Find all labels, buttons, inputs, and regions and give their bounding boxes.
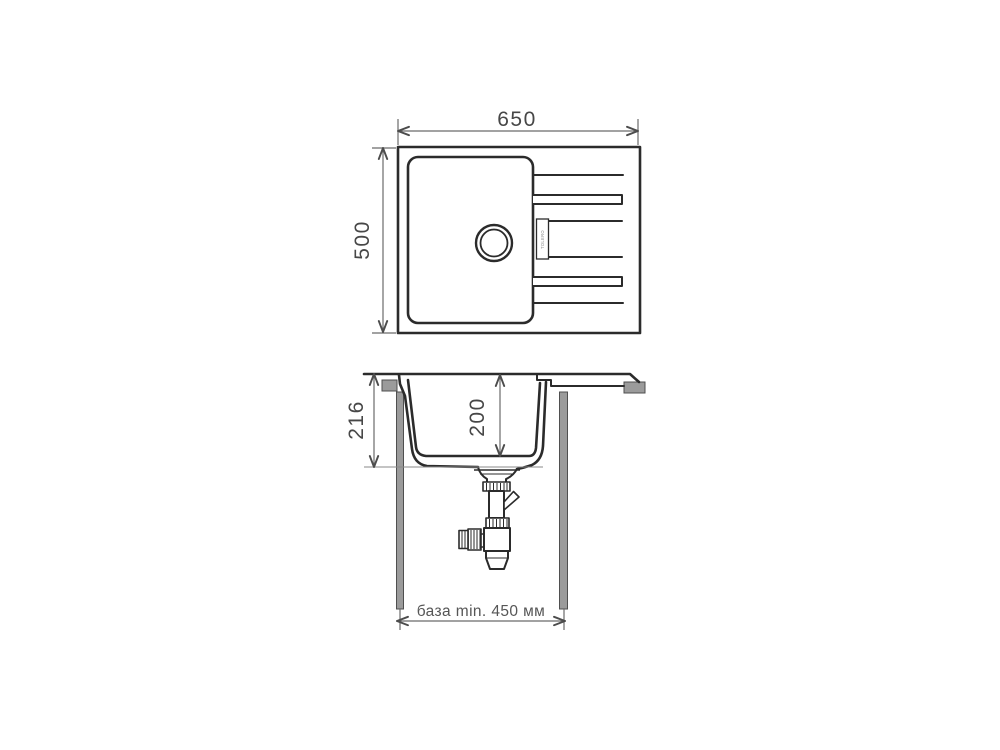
countertop-left: [382, 380, 397, 391]
siphon-assembly: [459, 467, 520, 569]
dishwasher-branch: [504, 492, 519, 511]
drain-pipe: [489, 491, 504, 518]
countertop-right: [624, 382, 645, 393]
sink-technical-drawing: TOLERO 650 500: [0, 0, 1000, 750]
dim-depth-extensions: [372, 148, 396, 333]
brand-label: TOLERO: [540, 230, 545, 249]
siphon-cup: [486, 551, 508, 569]
siphon-tee-body: [484, 528, 510, 551]
dim-bowl-depth-label: 200: [466, 397, 489, 437]
coupling-nut-top-ribs: [487, 483, 508, 491]
brand-plate: TOLERO: [537, 219, 549, 259]
groove-bar: [533, 195, 622, 204]
drawing-svg: TOLERO 650 500: [0, 0, 1000, 750]
dim-height: 216: [345, 374, 543, 467]
cabinet-wall-right: [560, 392, 568, 609]
dim-base-width: база min. 450 мм: [397, 603, 565, 630]
rim-underside: [537, 374, 624, 386]
dim-width: 650: [398, 108, 638, 145]
dim-depth: 500: [351, 148, 396, 333]
outlet-end-pipe: [459, 531, 468, 549]
bowl-outline-top: [408, 157, 533, 323]
dim-depth-label: 500: [351, 220, 374, 260]
drain-funnel-right: [506, 469, 517, 482]
section-view: 216 200 база min. 450 мм: [345, 374, 645, 630]
dim-base-label: база min. 450 мм: [417, 603, 545, 620]
top-view: TOLERO 650 500: [351, 108, 640, 333]
cabinet-wall-left: [397, 392, 404, 609]
dim-width-label: 650: [497, 108, 537, 131]
groove-bar: [533, 277, 622, 286]
dim-bowl-depth: 200: [466, 375, 504, 456]
dim-height-label: 216: [345, 400, 368, 440]
